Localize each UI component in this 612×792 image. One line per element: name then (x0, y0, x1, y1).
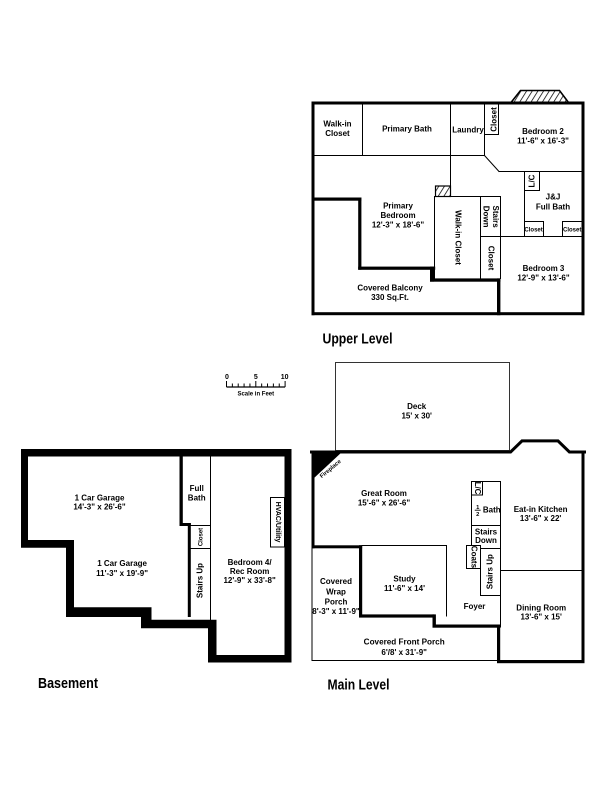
svg-text:Dining Room: Dining Room (516, 604, 566, 613)
svg-text:8'-3" x 11'-9": 8'-3" x 11'-9" (312, 607, 360, 616)
svg-text:Eat-in Kitchen: Eat-in Kitchen (514, 505, 568, 514)
svg-text:Bath: Bath (188, 493, 206, 502)
svg-text:11'-3" x 19'-9": 11'-3" x 19'-9" (96, 569, 148, 578)
svg-text:Full Bath: Full Bath (536, 202, 570, 211)
svg-text:Porch: Porch (325, 597, 348, 606)
svg-text:Covered: Covered (320, 577, 352, 586)
svg-text:Covered Balcony: Covered Balcony (357, 284, 423, 293)
svg-text:11'-6" x 14': 11'-6" x 14' (384, 584, 425, 593)
svg-text:6'/8' x 31'-9": 6'/8' x 31'-9" (381, 648, 427, 657)
svg-text:Covered Front Porch: Covered Front Porch (364, 637, 445, 646)
svg-text:Great Room: Great Room (361, 489, 407, 498)
svg-text:12'-9" x 13'-6": 12'-9" x 13'-6" (517, 274, 570, 283)
svg-text:14'-3" x 26'-6": 14'-3" x 26'-6" (73, 503, 126, 512)
svg-text:Scale in Feet: Scale in Feet (237, 392, 274, 398)
svg-text:11'-6" x 16'-3": 11'-6" x 16'-3" (517, 136, 569, 145)
svg-text:J&J: J&J (546, 192, 561, 201)
svg-text:Bedroom: Bedroom (380, 211, 415, 220)
svg-text:Closet: Closet (563, 227, 581, 233)
svg-text:Stairs Up: Stairs Up (196, 563, 205, 598)
svg-text:Walk-in: Walk-in (323, 119, 351, 128)
svg-text:1 Car Garage: 1 Car Garage (75, 494, 125, 503)
svg-text:Stairs: Stairs (491, 205, 500, 228)
svg-text:5: 5 (254, 374, 258, 381)
svg-text:Upper Level: Upper Level (323, 331, 393, 347)
svg-text:Coats: Coats (470, 546, 479, 569)
svg-text:15'-6" x 26'-6": 15'-6" x 26'-6" (358, 499, 411, 508)
svg-text:Closet: Closet (486, 246, 495, 271)
svg-text:Bedroom 2: Bedroom 2 (522, 127, 564, 136)
svg-text:HVAC/Utility: HVAC/Utility (274, 502, 281, 543)
svg-text:Closet: Closet (198, 528, 204, 546)
svg-text:Basement: Basement (38, 676, 98, 692)
svg-text:Down: Down (475, 536, 497, 545)
svg-text:13'-6" x 15': 13'-6" x 15' (520, 613, 562, 622)
svg-text:1 Car Garage: 1 Car Garage (97, 559, 147, 568)
svg-text:Main Level: Main Level (328, 678, 390, 694)
svg-text:Closet: Closet (325, 129, 350, 138)
svg-text:330 Sq.Ft.: 330 Sq.Ft. (371, 293, 409, 302)
svg-text:Wrap: Wrap (326, 587, 346, 596)
svg-text:Walk-in Closet: Walk-in Closet (453, 210, 462, 265)
svg-text:Closet: Closet (489, 107, 498, 132)
svg-text:Bedroom 4/: Bedroom 4/ (228, 558, 273, 567)
svg-text:Foyer: Foyer (464, 602, 486, 611)
svg-text:L/C: L/C (527, 174, 536, 187)
svg-text:Bedroom 3: Bedroom 3 (523, 264, 565, 273)
svg-text:12'-3" x 18'-6": 12'-3" x 18'-6" (372, 221, 425, 230)
svg-text:Study: Study (393, 574, 416, 583)
svg-text:Closet: Closet (524, 227, 542, 233)
svg-text:Full: Full (190, 484, 204, 493)
svg-text:Deck: Deck (407, 402, 427, 411)
svg-text:Primary Bath: Primary Bath (382, 124, 432, 133)
svg-text:15' x 30': 15' x 30' (401, 412, 432, 421)
svg-text:10: 10 (281, 374, 289, 381)
svg-text:Bath: Bath (483, 505, 501, 514)
svg-text:Laundry: Laundry (452, 125, 484, 134)
svg-text:Rec Room: Rec Room (230, 567, 270, 576)
svg-text:0: 0 (225, 374, 229, 381)
svg-text:Primary: Primary (383, 201, 413, 210)
svg-text:L/C: L/C (473, 482, 482, 495)
svg-text:Stairs: Stairs (475, 528, 498, 537)
svg-text:Stairs Up: Stairs Up (486, 554, 495, 589)
svg-text:13'-6" x 22': 13'-6" x 22' (520, 514, 562, 523)
svg-text:2: 2 (476, 512, 479, 518)
svg-text:12'-9" x 33'-8": 12'-9" x 33'-8" (223, 576, 276, 585)
svg-text:Down: Down (482, 206, 491, 228)
